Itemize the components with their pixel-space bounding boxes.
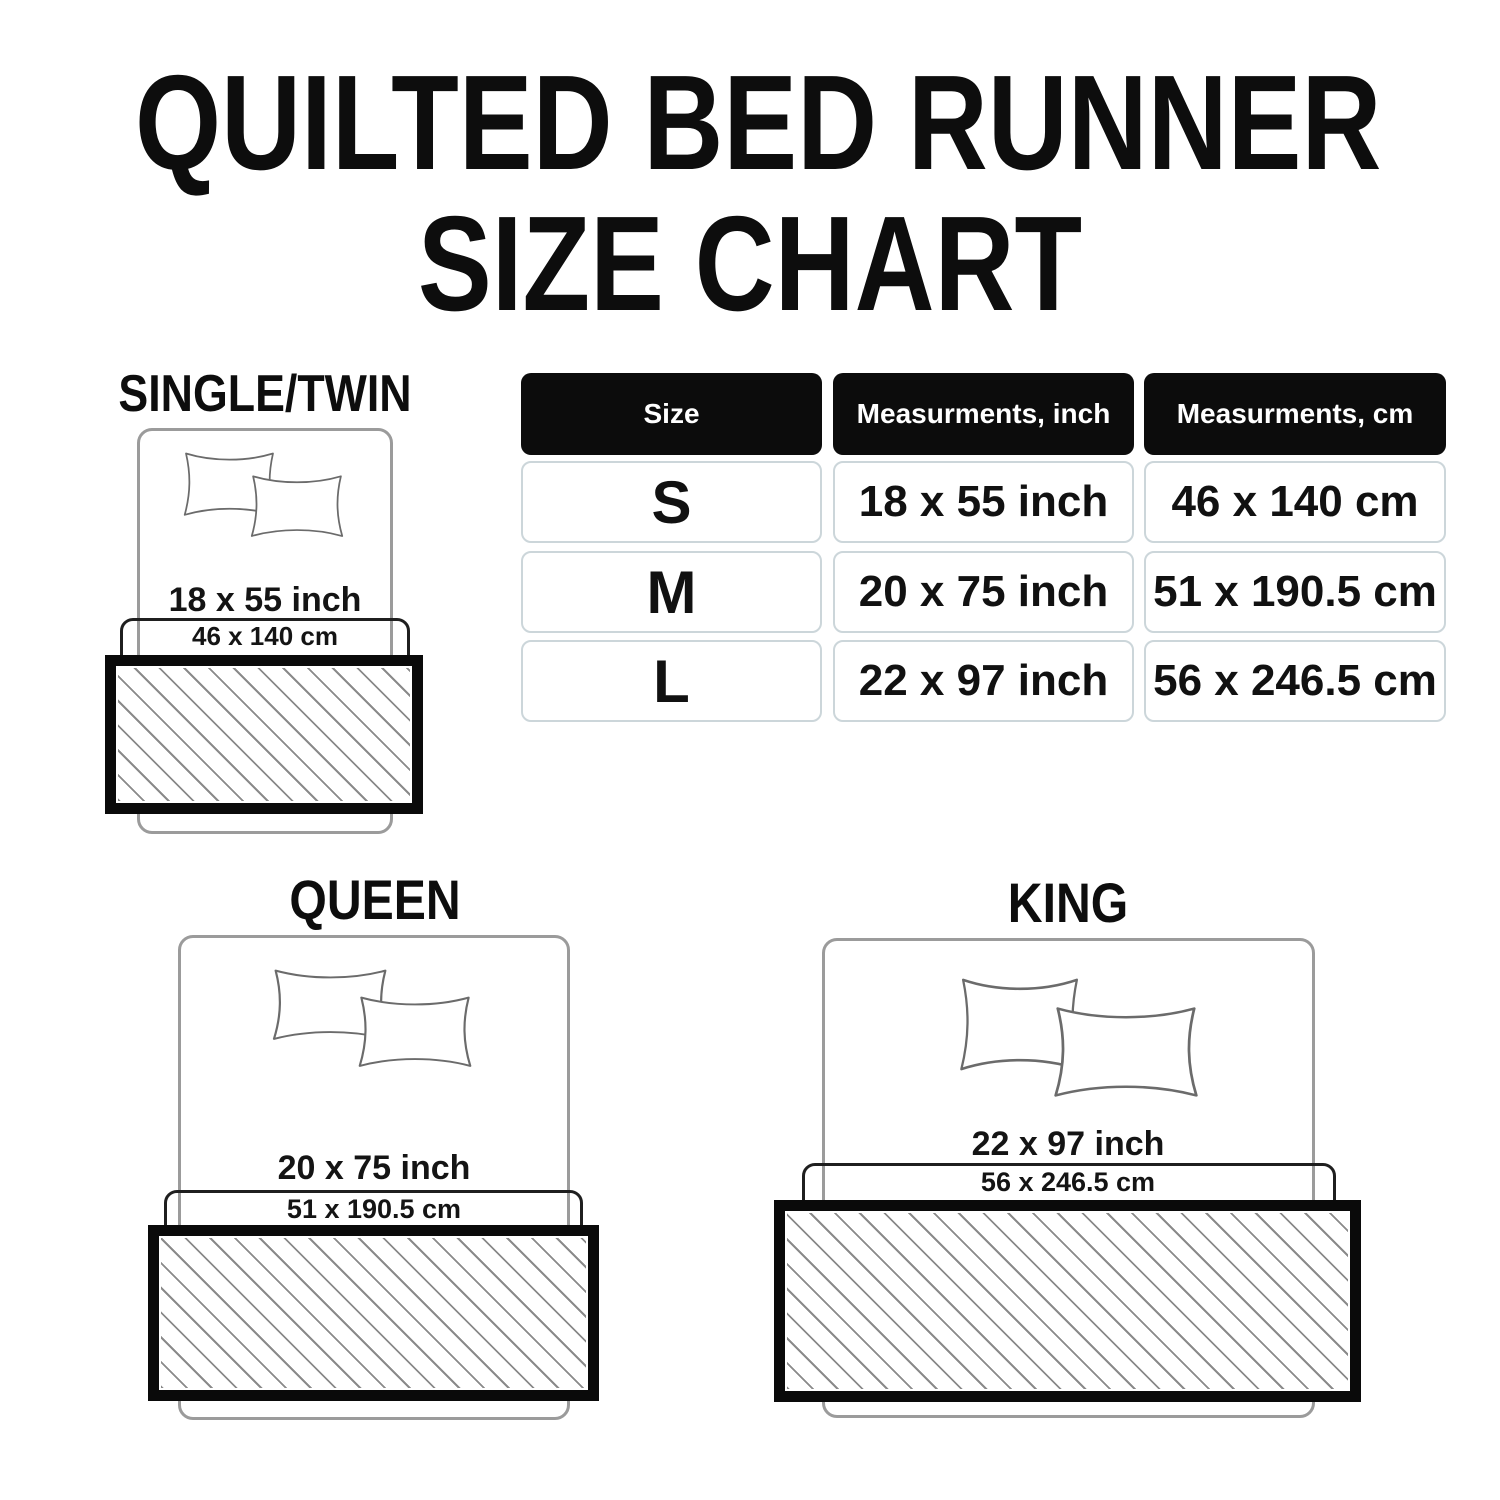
size-chart-page: QUILTED BED RUNNER SIZE CHART Size Measu… <box>0 0 1500 1500</box>
pillow-right-icon <box>1042 995 1210 1107</box>
quilted-runner-swatch <box>774 1200 1361 1402</box>
hatch-pattern <box>118 668 410 801</box>
inch-dimension-label: 22 x 97 inch <box>848 1127 1288 1161</box>
table-cell-size-s: S <box>521 461 822 543</box>
table-cell-inch-s: 18 x 55 inch <box>833 461 1134 543</box>
bed-size-label: QUEEN <box>186 872 564 928</box>
pillow-right-icon <box>243 467 351 544</box>
cm-dimension-label: 46 x 140 cm <box>45 623 485 649</box>
table-cell-inch-m: 20 x 75 inch <box>833 551 1134 633</box>
hatch-pattern <box>787 1213 1348 1389</box>
cm-dimension-label: 56 x 246.5 cm <box>848 1169 1288 1196</box>
table-cell-size-l: L <box>521 640 822 722</box>
table-header-size: Size <box>521 373 822 455</box>
inch-dimension-label: 18 x 55 inch <box>45 583 485 617</box>
quilted-runner-swatch <box>148 1225 599 1401</box>
table-cell-cm-s: 46 x 140 cm <box>1144 461 1446 543</box>
table-cell-inch-l: 22 x 97 inch <box>833 640 1134 722</box>
page-title-line-2: SIZE CHART <box>135 196 1365 331</box>
hatch-pattern <box>161 1238 586 1388</box>
inch-dimension-label: 20 x 75 inch <box>154 1151 594 1185</box>
table-cell-size-m: M <box>521 551 822 633</box>
bed-size-label: KING <box>879 875 1257 931</box>
bed-size-label: SINGLE/TWIN <box>76 368 454 420</box>
quilted-runner-swatch <box>105 655 423 814</box>
pillow-right-icon <box>349 987 481 1075</box>
page-title-line-1: QUILTED BED RUNNER <box>135 55 1365 190</box>
table-header-cm: Measurments, cm <box>1144 373 1446 455</box>
table-header-inch: Measurments, inch <box>833 373 1134 455</box>
table-cell-cm-m: 51 x 190.5 cm <box>1144 551 1446 633</box>
table-cell-cm-l: 56 x 246.5 cm <box>1144 640 1446 722</box>
cm-dimension-label: 51 x 190.5 cm <box>154 1196 594 1223</box>
